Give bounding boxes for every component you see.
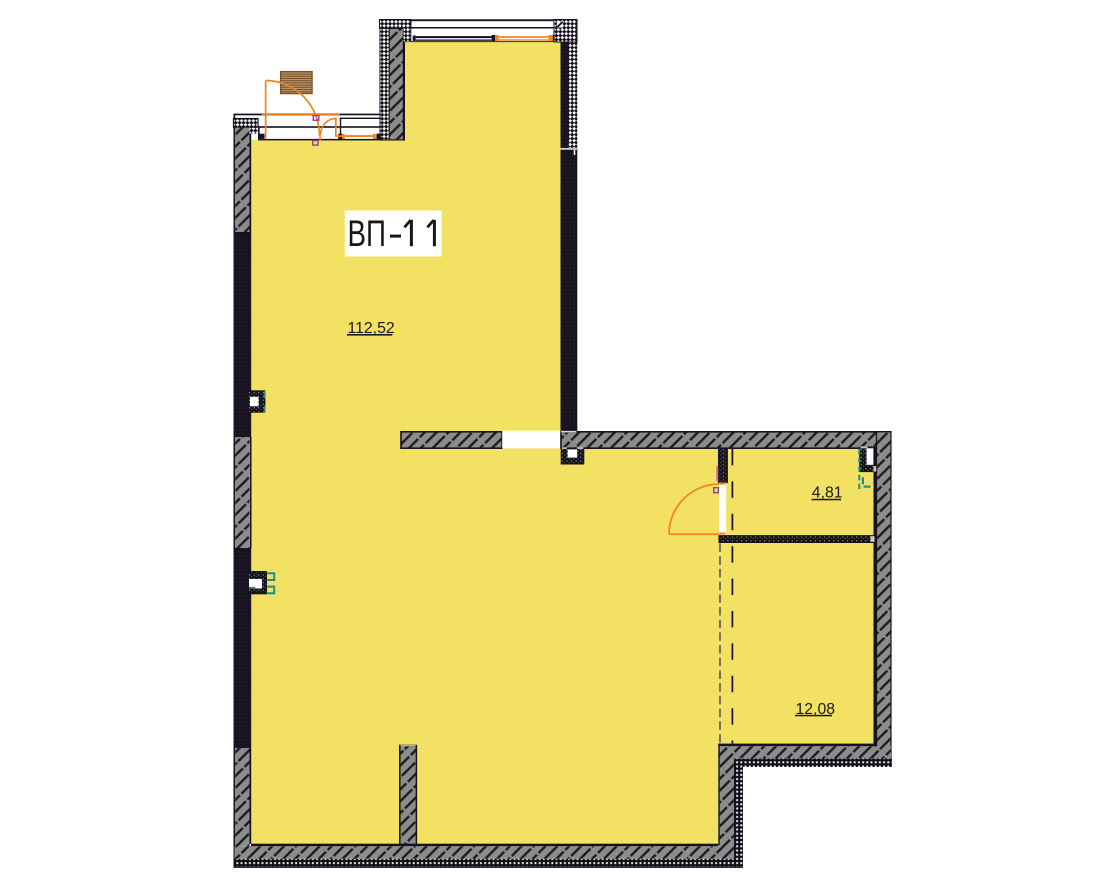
svg-text:ВП: ВП — [348, 212, 386, 254]
